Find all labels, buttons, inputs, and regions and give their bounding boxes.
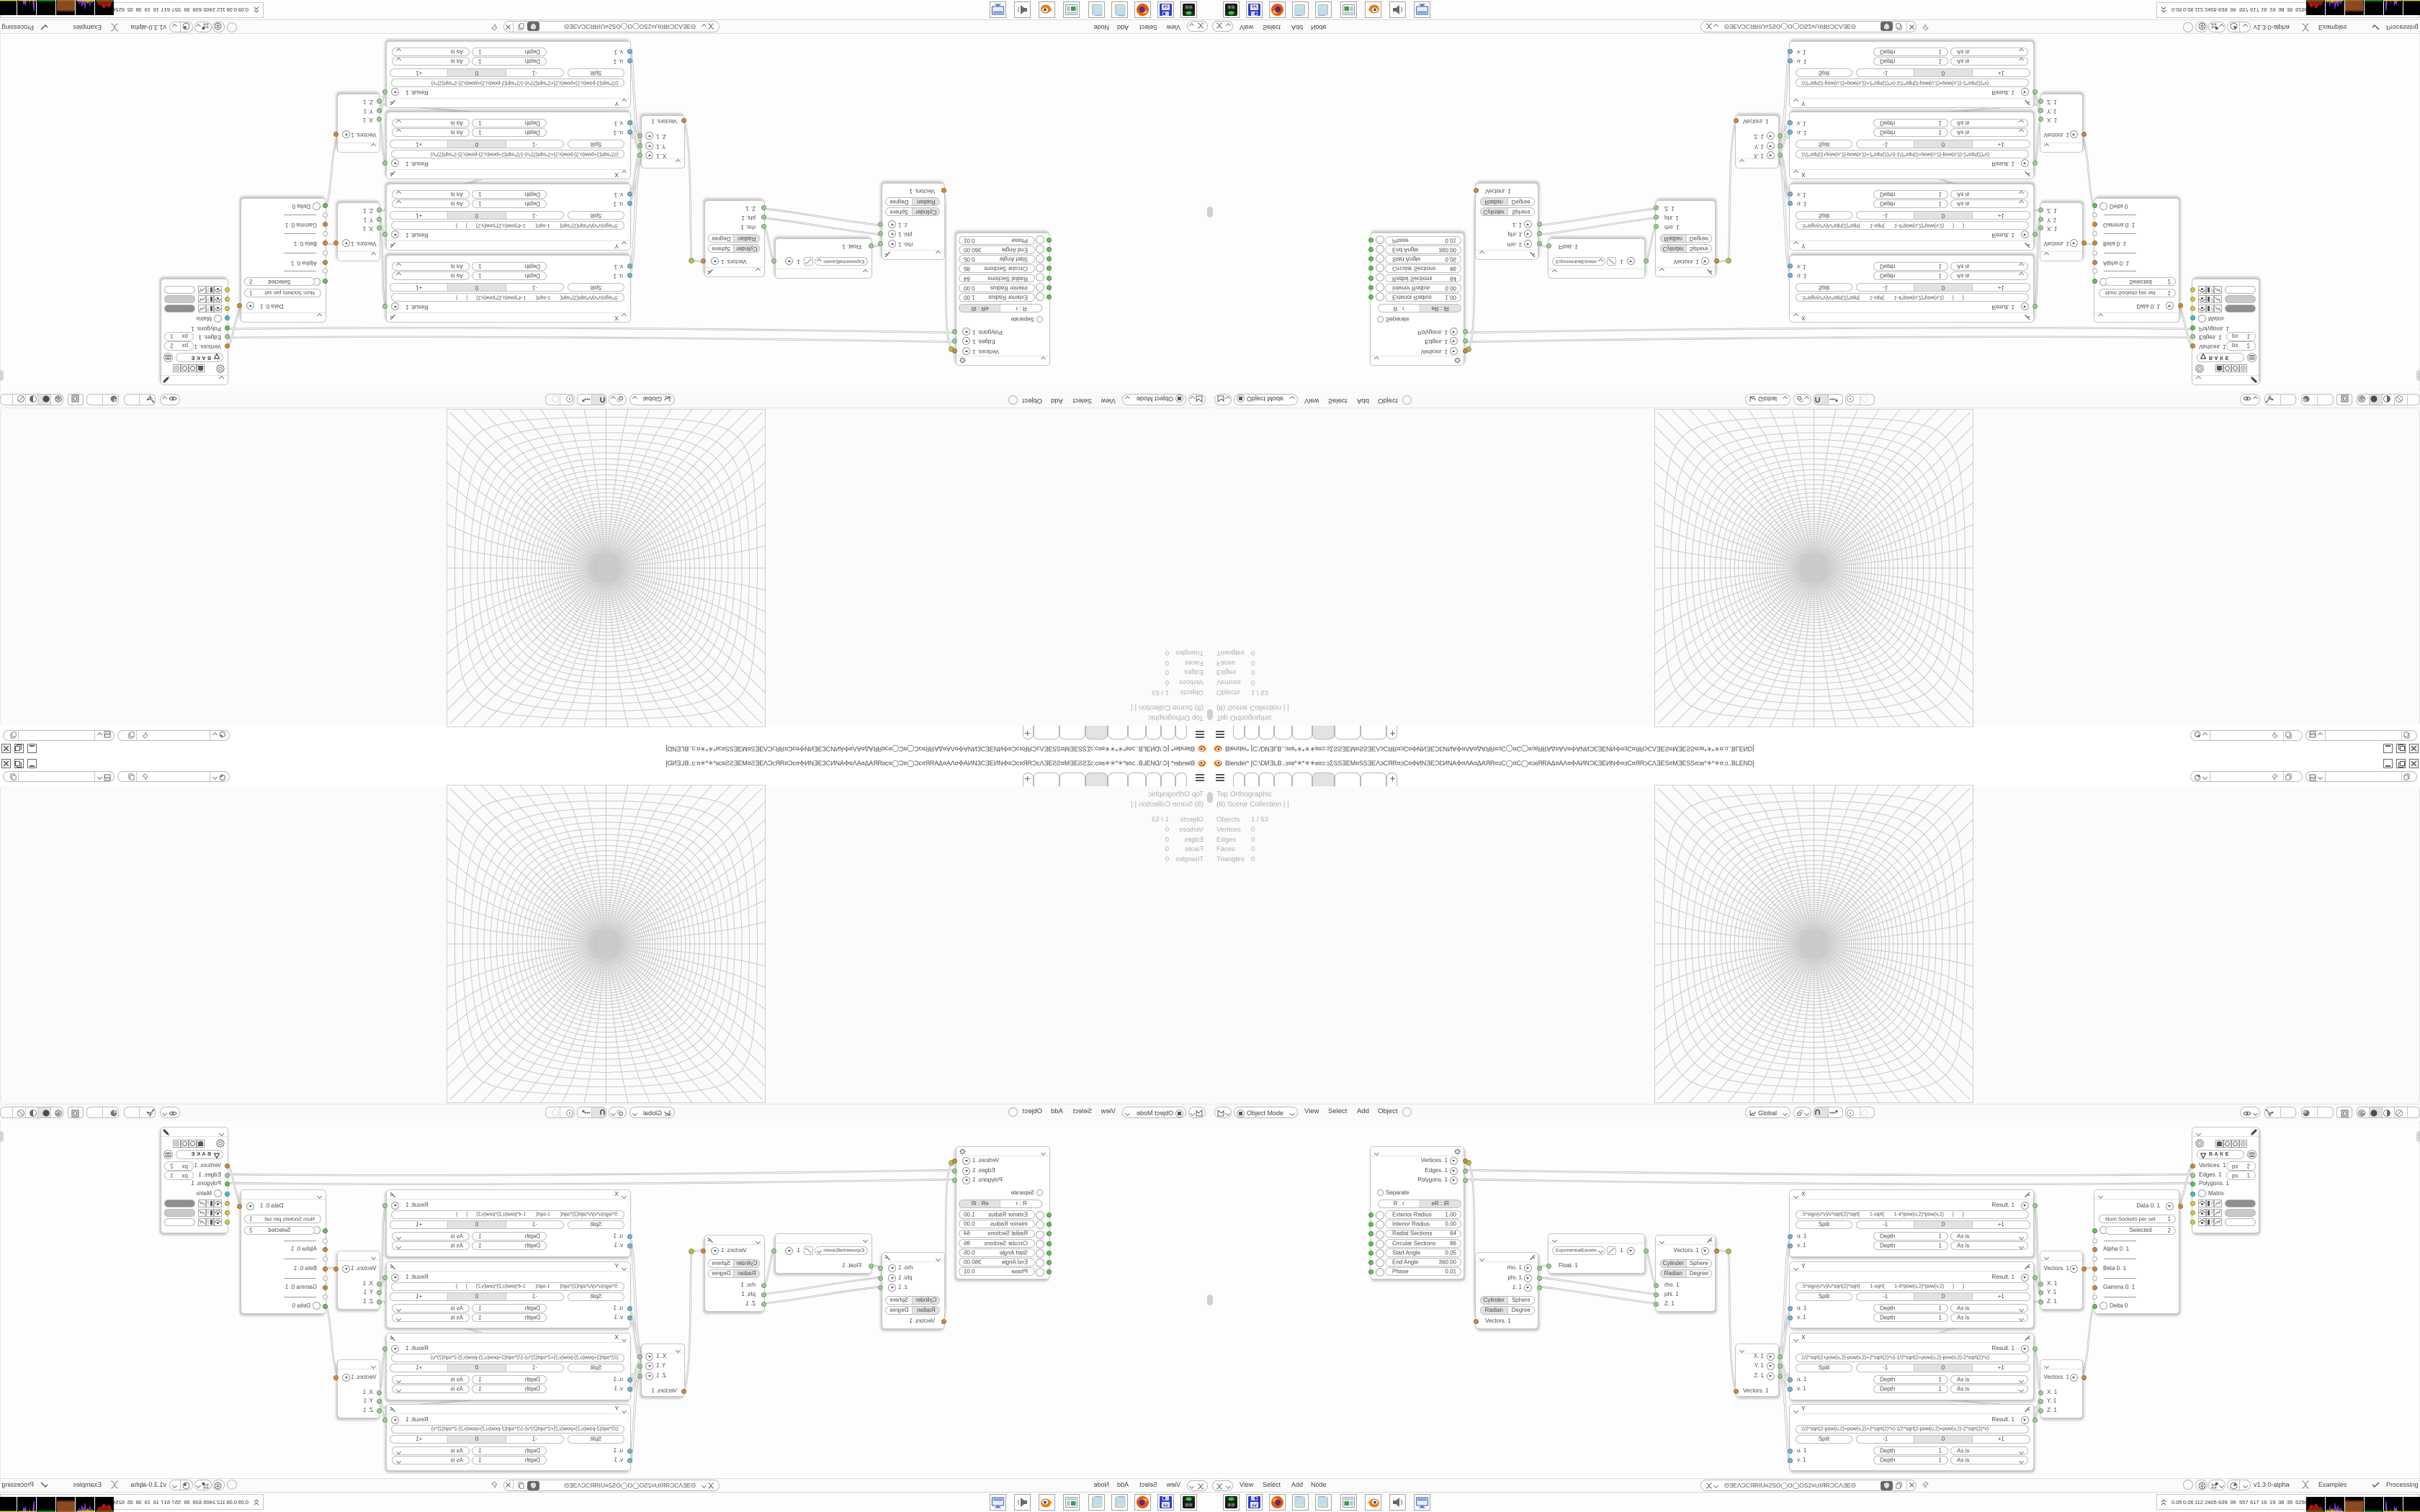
svg-text:64: 64 <box>1163 4 1168 9</box>
svg-text:64: 64 <box>1252 4 1257 9</box>
svg-text:64: 64 <box>1252 1504 1257 1508</box>
svg-text:64: 64 <box>1163 1504 1168 1508</box>
